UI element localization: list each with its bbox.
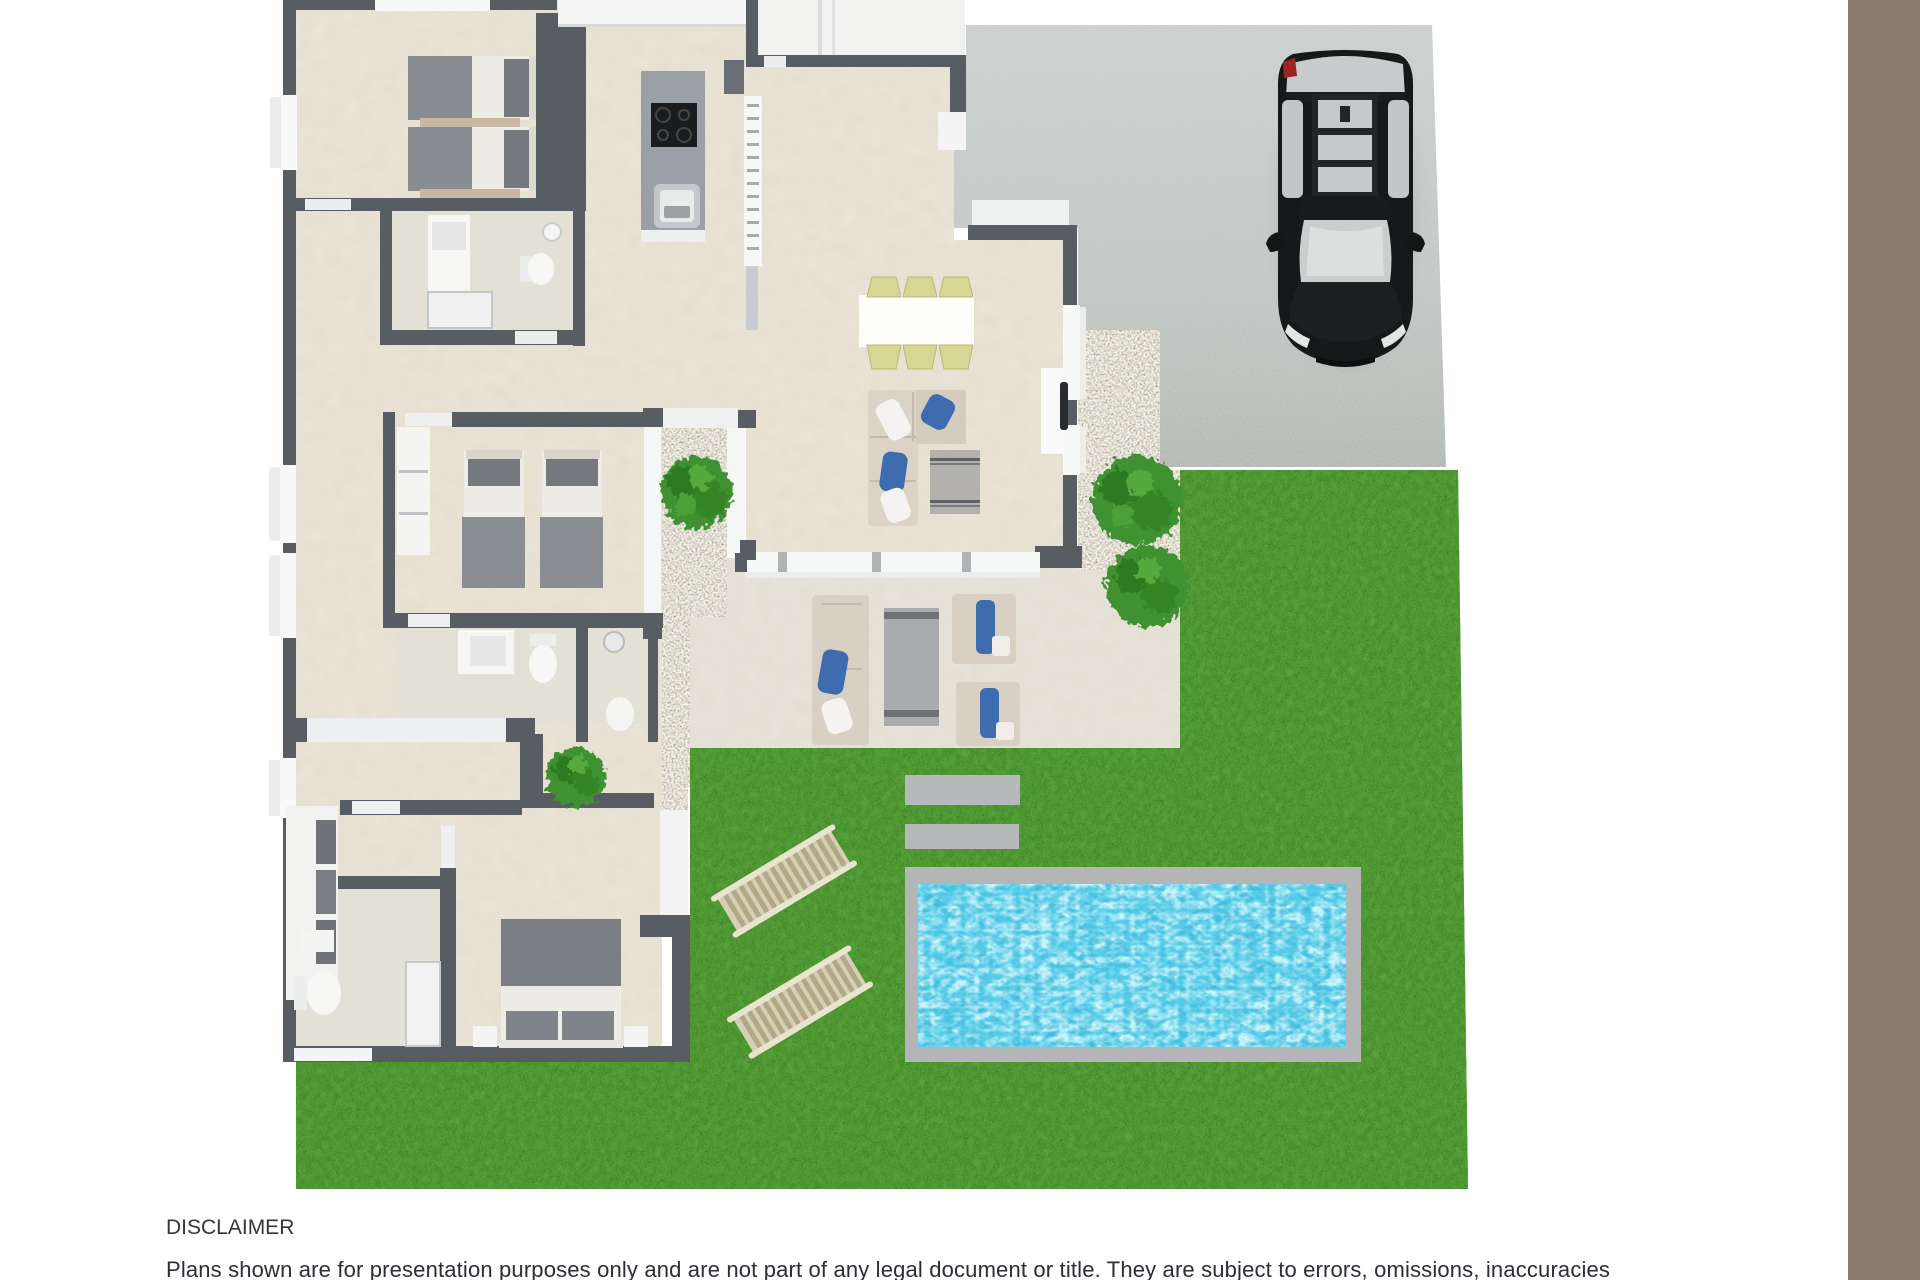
svg-text:DISCLAIMER: DISCLAIMER <box>166 1216 294 1239</box>
svg-text:Plans shown are for presentati: Plans shown are for presentation purpose… <box>166 1257 1610 1280</box>
